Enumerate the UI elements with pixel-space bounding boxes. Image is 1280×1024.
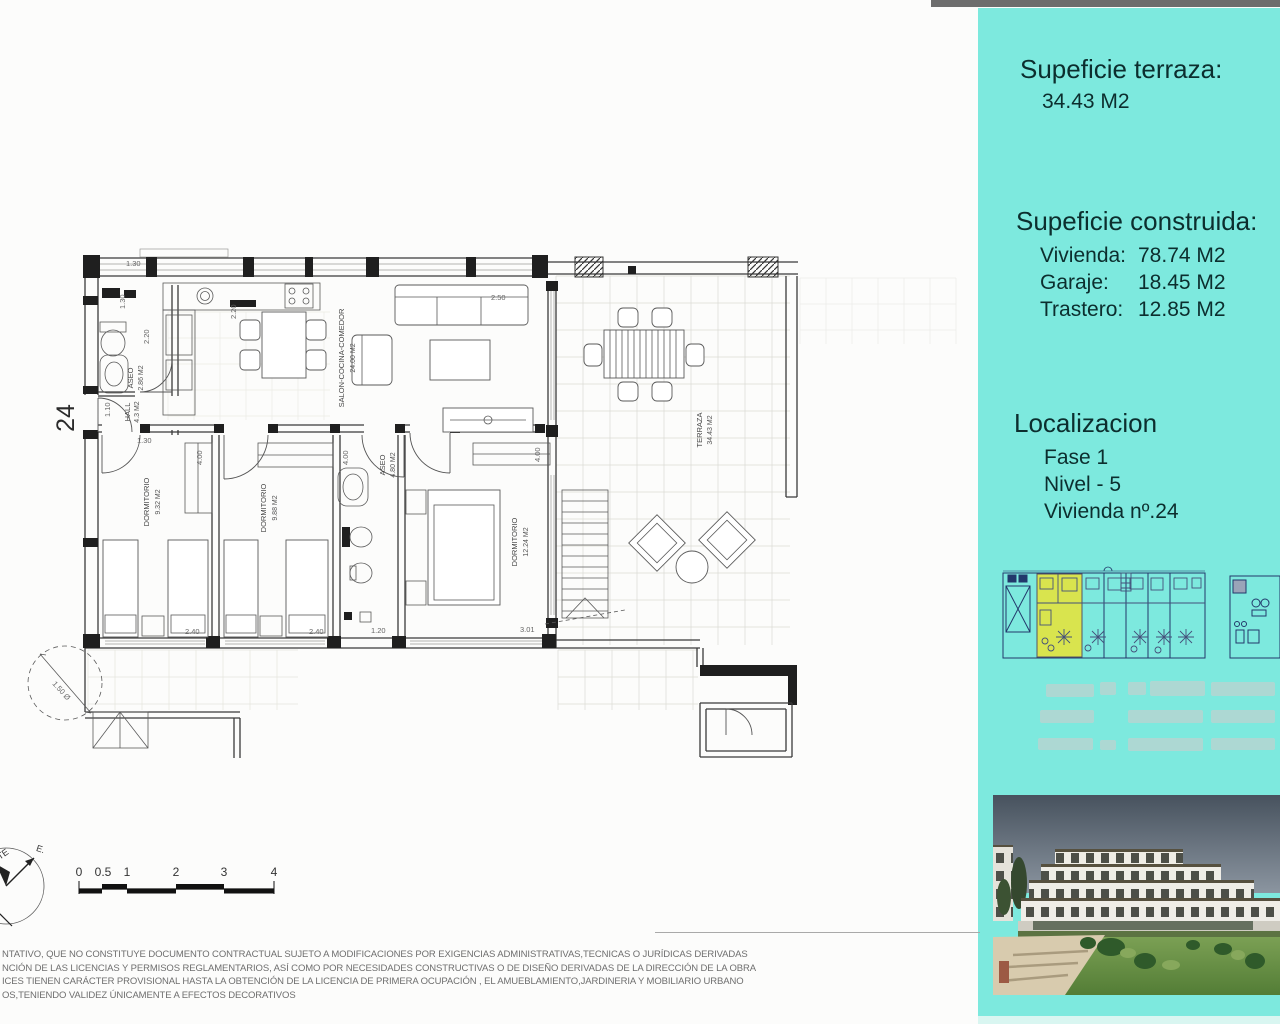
lower-terrace-tile-grid bbox=[558, 650, 698, 710]
bedroom1-furniture bbox=[103, 443, 212, 637]
location-nivel: Nivel - 5 bbox=[1044, 471, 1179, 498]
dim: 3.01 bbox=[520, 625, 535, 634]
built-row-trastero: Trastero: 12.85 M2 bbox=[1040, 296, 1226, 323]
built-row-garaje: Garaje: 18.45 M2 bbox=[1040, 269, 1226, 296]
dim: 1.30 bbox=[118, 294, 127, 309]
location-highlighted-unit bbox=[1037, 574, 1082, 657]
room-aseo2-area: 4.80 M2 bbox=[390, 452, 397, 477]
room-terraza-area: 34.43 M2 bbox=[707, 415, 714, 444]
dim: 1.30 bbox=[137, 436, 152, 445]
location-right-block bbox=[1230, 576, 1280, 658]
panel-bottom-strip bbox=[978, 1016, 1280, 1024]
trastero-value: 12.85 M2 bbox=[1138, 296, 1226, 323]
parapet-pillar bbox=[748, 257, 778, 277]
bedroom3-furniture bbox=[406, 443, 550, 605]
location-ghost-shapes bbox=[1038, 681, 1275, 751]
room-dorm2-name: DORMITORIO bbox=[259, 484, 268, 533]
scale-1: 1 bbox=[124, 865, 131, 879]
terrace-surface-value: 34.43 M2 bbox=[1042, 90, 1130, 114]
room-hall-name: HALL bbox=[123, 403, 132, 422]
dim: 4.00 bbox=[341, 450, 350, 465]
dim: 4.00 bbox=[533, 447, 542, 462]
room-dorm3-name: DORMITORIO bbox=[510, 518, 519, 567]
scale-05: 0.5 bbox=[95, 865, 112, 879]
built-surface-rows: Vivienda: 78.74 M2 Garaje: 18.45 M2 Tras… bbox=[1040, 242, 1226, 323]
top-gray-bar bbox=[931, 0, 1280, 7]
vivienda-value: 78.74 M2 bbox=[1138, 242, 1226, 269]
room-dorm1-area: 9.32 M2 bbox=[155, 489, 162, 514]
room-salon-name: SALON-COCINA-COMEDOR bbox=[337, 308, 346, 407]
wall-piers bbox=[83, 255, 636, 648]
scale-4: 4 bbox=[271, 865, 278, 879]
dining-set bbox=[240, 312, 326, 378]
disclaimer-line-3: ICES TIENEN CARÁCTER PROVISIONAL HASTA L… bbox=[2, 975, 652, 989]
dim: 1.30 bbox=[126, 259, 141, 268]
room-dorm1-name: DORMITORIO bbox=[142, 478, 151, 527]
disclaimer-line-4: OS,TENIENDO VALIDEZ ÚNICAMENTE A EFECTOS… bbox=[2, 989, 652, 1003]
location-fase: Fase 1 bbox=[1044, 444, 1179, 471]
dim: 2.40 bbox=[309, 627, 324, 636]
unit-number-label: 24 bbox=[52, 404, 80, 432]
trastero-label: Trastero: bbox=[1040, 296, 1138, 323]
location-key-plan bbox=[978, 558, 1280, 770]
built-row-vivienda: Vivienda: 78.74 M2 bbox=[1040, 242, 1226, 269]
garaje-label: Garaje: bbox=[1040, 269, 1138, 296]
bedroom2-furniture bbox=[224, 443, 333, 637]
dim: 1.20 bbox=[371, 626, 386, 635]
room-dorm3-area: 12.24 M2 bbox=[523, 527, 530, 556]
scale-2: 2 bbox=[173, 865, 180, 879]
parapet-pillar bbox=[575, 257, 603, 277]
built-surface-title: Supeficie construida: bbox=[1016, 206, 1257, 237]
dim-circle: 1.50 Ø bbox=[51, 679, 73, 702]
scale-bar: 0 0.5 1 2 3 4 bbox=[76, 865, 278, 894]
dim: 2.40 bbox=[185, 627, 200, 636]
legal-disclaimer: NTATIVO, QUE NO CONSTITUYE DOCUMENTO CON… bbox=[2, 948, 652, 1002]
terrace-surface-title: Supeficie terraza: bbox=[1020, 54, 1222, 85]
adjacent-terrace-ghost-grid bbox=[800, 278, 956, 344]
disclaimer-line-1: NTATIVO, QUE NO CONSTITUYE DOCUMENTO CON… bbox=[2, 948, 652, 962]
room-terraza-name: TERRAZA bbox=[695, 412, 704, 447]
floorplan-sheet: 1.50 Ø ASEO 2.86 M2 HALL 4.3 M2 SALON-CO… bbox=[0, 0, 1280, 1024]
room-salon-area: 24.00 M2 bbox=[350, 343, 357, 372]
lower-left-tile-grid bbox=[88, 650, 298, 710]
location-lines: Fase 1 Nivel - 5 Vivienda nº.24 bbox=[1044, 444, 1179, 525]
scale-0: 0 bbox=[76, 865, 83, 879]
room-aseo2-name: ASEO bbox=[378, 454, 387, 475]
location-title: Localizacion bbox=[1014, 408, 1157, 439]
vivienda-label: Vivienda: bbox=[1040, 242, 1138, 269]
salon-furniture bbox=[352, 285, 533, 432]
room-dorm2-area: 9.88 M2 bbox=[272, 495, 279, 520]
dim: 1.10 bbox=[103, 402, 112, 417]
north-arrow: TE E. bbox=[0, 843, 46, 926]
compass-e-label: E. bbox=[35, 843, 46, 855]
dim: 2.20 bbox=[229, 304, 238, 319]
garaje-value: 18.45 M2 bbox=[1138, 269, 1226, 296]
disclaimer-line-2: NCIÓN DE LAS LICENCIAS Y PERMISOS REGLAM… bbox=[2, 962, 652, 976]
terrace-stairs bbox=[545, 490, 625, 624]
room-hall-area: 4.3 M2 bbox=[134, 401, 141, 423]
dim: 2.20 bbox=[142, 329, 151, 344]
dim: 4.00 bbox=[195, 450, 204, 465]
room-aseo1-area: 2.86 M2 bbox=[138, 365, 145, 390]
aseo2-fixtures bbox=[338, 468, 372, 622]
building-photo bbox=[993, 795, 1280, 995]
circle-detail: 1.50 Ø bbox=[28, 646, 102, 720]
location-vivienda: Vivienda nº.24 bbox=[1044, 498, 1179, 525]
room-aseo1-name: ASEO bbox=[126, 367, 135, 388]
dim: 2.50 bbox=[491, 293, 506, 302]
compass-te-label: TE bbox=[0, 847, 10, 862]
footer-divider-line bbox=[655, 932, 980, 933]
scale-3: 3 bbox=[221, 865, 228, 879]
floor-plan-drawing: 1.50 Ø ASEO 2.86 M2 HALL 4.3 M2 SALON-CO… bbox=[0, 0, 980, 1024]
